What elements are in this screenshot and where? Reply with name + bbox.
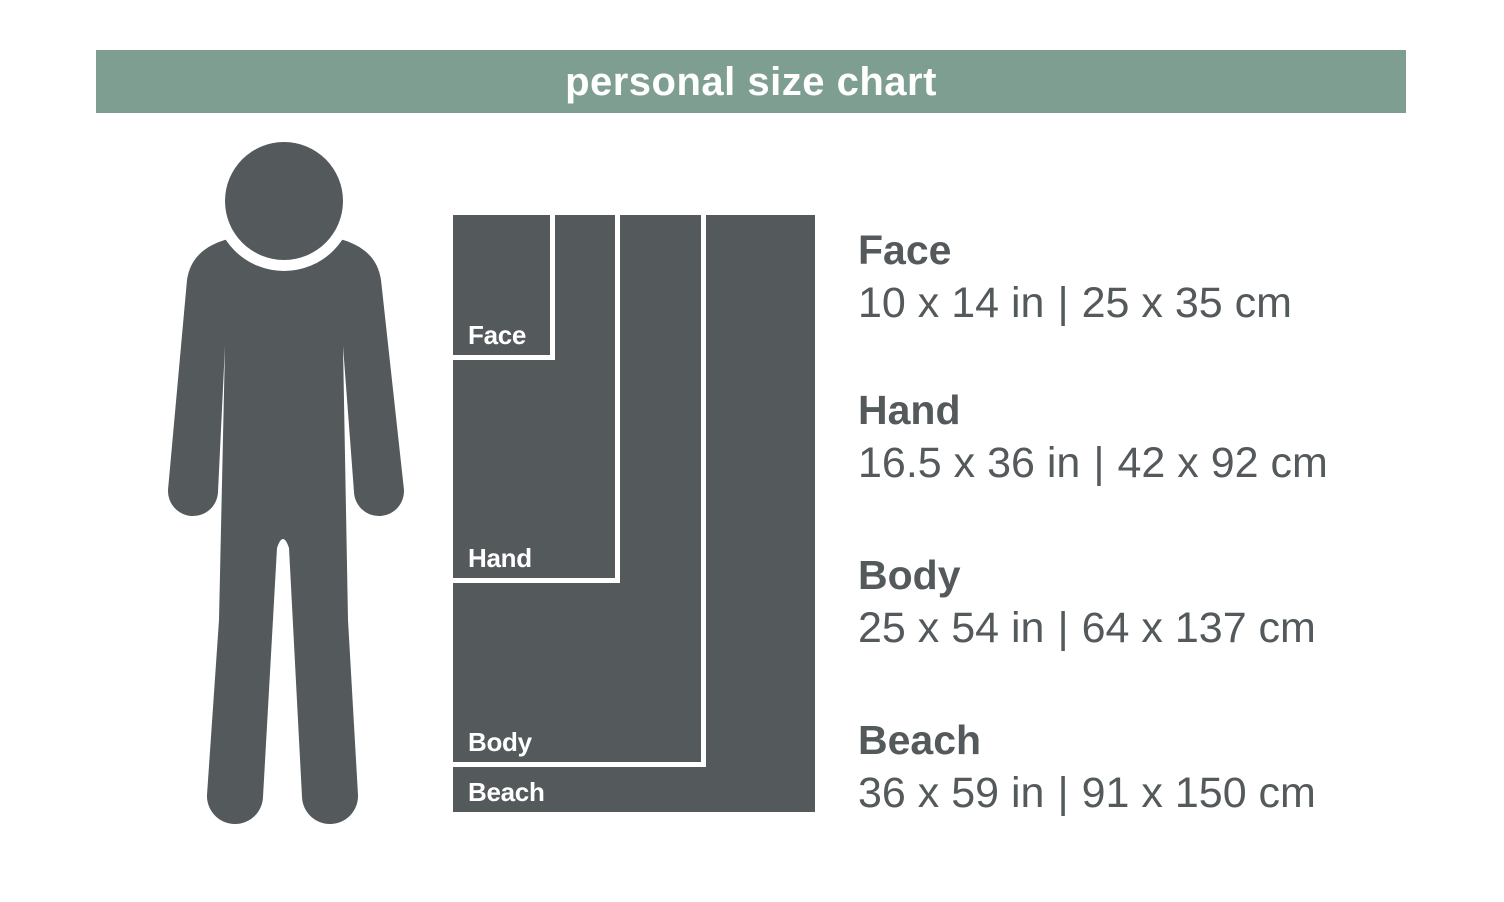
size-separator: |	[1057, 604, 1068, 652]
person-icon	[162, 140, 407, 827]
size-separator: |	[1093, 439, 1104, 487]
size-dimensions: 25 x 54 in|64 x 137 cm	[858, 602, 1316, 654]
size-dimensions: 36 x 59 in|91 x 150 cm	[858, 767, 1316, 819]
size-chart-infographic: personal size chart Beach Body Hand Face…	[0, 0, 1504, 902]
size-entry-hand: Hand 16.5 x 36 in|42 x 92 cm	[858, 385, 1328, 489]
towel-rect-label-beach: Beach	[468, 779, 545, 805]
size-separator: |	[1057, 769, 1068, 817]
size-cm: 64 x 137 cm	[1082, 604, 1316, 652]
towel-rect-label-body: Body	[468, 729, 532, 755]
size-entry-face: Face 10 x 14 in|25 x 35 cm	[858, 225, 1292, 329]
size-entry-beach: Beach 36 x 59 in|91 x 150 cm	[858, 715, 1316, 819]
size-name: Beach	[858, 715, 1316, 765]
size-separator: |	[1057, 279, 1068, 327]
size-cm: 25 x 35 cm	[1082, 279, 1292, 327]
size-name: Body	[858, 550, 1316, 600]
size-entry-body: Body 25 x 54 in|64 x 137 cm	[858, 550, 1316, 654]
size-name: Hand	[858, 385, 1328, 435]
page-title: personal size chart	[565, 62, 937, 102]
size-cm: 42 x 92 cm	[1118, 439, 1328, 487]
size-inches: 10 x 14 in	[858, 279, 1044, 327]
size-inches: 16.5 x 36 in	[858, 439, 1080, 487]
size-dimensions: 10 x 14 in|25 x 35 cm	[858, 277, 1292, 329]
size-cm: 91 x 150 cm	[1082, 769, 1316, 817]
person-head	[225, 142, 343, 260]
header-banner: personal size chart	[96, 50, 1406, 113]
towel-rect-label-face: Face	[468, 322, 526, 348]
size-name: Face	[858, 225, 1292, 275]
size-inches: 25 x 54 in	[858, 604, 1044, 652]
size-inches: 36 x 59 in	[858, 769, 1044, 817]
towel-rect-label-hand: Hand	[468, 545, 532, 571]
towel-size-diagram: Beach Body Hand Face	[453, 215, 815, 812]
size-dimensions: 16.5 x 36 in|42 x 92 cm	[858, 437, 1328, 489]
towel-rect-face: Face	[453, 215, 555, 360]
